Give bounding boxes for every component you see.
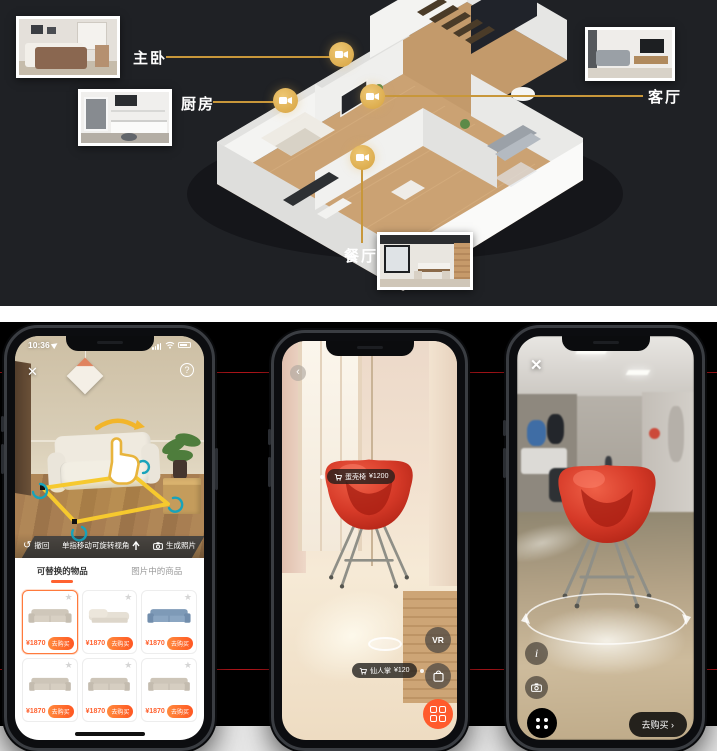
product-card[interactable]: ★ ¥1870去购买 xyxy=(22,658,78,722)
line-kitchen xyxy=(213,101,275,103)
left-phone-screen: ↺ 撤回 单指移动可旋转视角 生成照片 xyxy=(15,336,204,740)
buy-button[interactable]: 去购买 xyxy=(48,637,74,650)
kitchen-shelf xyxy=(111,110,165,112)
close-button[interactable]: ✕ xyxy=(530,356,543,374)
living-floor xyxy=(588,68,672,78)
info-label: i xyxy=(535,646,538,661)
product-price-tag[interactable]: 蛋壳椅 ¥1200 xyxy=(320,469,395,484)
vr-mode-button[interactable]: VR xyxy=(425,627,451,653)
close-button[interactable]: ✕ xyxy=(27,364,38,380)
sofa-image xyxy=(27,605,73,629)
dining-floor xyxy=(380,279,470,287)
tab-replaceable-items[interactable]: 可替换的物品 xyxy=(15,565,110,577)
back-button[interactable]: ‹ xyxy=(290,365,306,381)
placement-outline xyxy=(43,475,168,522)
kitchen-window xyxy=(84,97,108,131)
rotate-arrow-right xyxy=(682,614,691,625)
battery-icon xyxy=(178,342,191,348)
location-arrow-icon xyxy=(51,341,59,349)
product-price: ¥1870 xyxy=(26,708,45,715)
phone-left: ↺ 撤回 单指移动可旋转视角 生成照片 xyxy=(4,325,215,751)
tag-product-price: ¥1200 xyxy=(369,473,388,480)
mute-switch xyxy=(503,420,506,436)
signal-bars-icon xyxy=(152,340,162,350)
buy-button[interactable]: 去购买 xyxy=(48,705,74,718)
generate-photo-button[interactable]: 生成照片 xyxy=(153,540,196,551)
four-dots-icon xyxy=(536,718,549,729)
rotation-ring[interactable] xyxy=(520,588,692,650)
product-card[interactable]: ★ ¥1870去购买 xyxy=(22,590,78,654)
video-camera-icon xyxy=(335,50,348,59)
label-living-room: 客厅 xyxy=(648,86,682,107)
star-icon[interactable]: ★ xyxy=(124,661,132,670)
product-price: ¥1870 xyxy=(145,640,164,647)
thumbnail-living-room[interactable] xyxy=(585,27,675,81)
generate-photo-label: 生成照片 xyxy=(166,540,196,551)
bedroom-chair xyxy=(95,45,109,67)
video-camera-icon xyxy=(356,153,369,162)
page: 主卧 厨房 客厅 餐厅 xyxy=(0,0,717,751)
product-price: ¥1870 xyxy=(86,640,105,647)
cart-icon xyxy=(334,473,342,481)
shopping-bag-icon xyxy=(433,670,444,682)
sheer-curtain xyxy=(429,341,457,586)
tag-product-name: 蛋壳椅 xyxy=(345,472,366,482)
product-tabs: 可替换的物品 图片中的商品 xyxy=(15,558,204,584)
product-grid: ★ ¥1870去购买 ★ ¥1870去购买 ★ ¥1870去购买 xyxy=(15,584,204,722)
video-camera-icon xyxy=(279,96,292,105)
tag-anchor-dot xyxy=(320,475,324,479)
undo-button[interactable]: ↺ 撤回 xyxy=(23,540,49,551)
bedroom-frame xyxy=(31,25,43,34)
tag-product-price: ¥120 xyxy=(394,667,410,674)
floorplan-hero-section: 主卧 厨房 客厅 餐厅 xyxy=(0,0,717,306)
placement-indicator xyxy=(368,637,402,651)
buy-button[interactable]: 去购买 xyxy=(107,705,133,718)
phone-middle: ‹ 蛋壳椅 ¥1200 仙人掌 ¥120 xyxy=(271,330,468,751)
secondary-price-tag[interactable]: 仙人掌 ¥120 xyxy=(352,663,424,678)
sofa-image xyxy=(86,605,132,629)
volume-buttons xyxy=(1,444,4,474)
thumbnail-master-bedroom[interactable] xyxy=(16,16,120,78)
red-chair-3d-model[interactable] xyxy=(315,437,423,599)
line-master-bedroom xyxy=(166,56,331,58)
tag-anchor-dot xyxy=(420,669,424,673)
product-price: ¥1870 xyxy=(86,708,105,715)
video-camera-icon xyxy=(366,92,379,101)
bedroom-blanket xyxy=(35,47,87,69)
camera-icon xyxy=(153,542,163,550)
product-panel: 可替换的物品 图片中的商品 ★ ¥1870去购买 ★ ¥1870去购买 xyxy=(15,558,204,740)
star-icon[interactable]: ★ xyxy=(65,593,73,602)
sofa-image xyxy=(146,673,192,697)
mute-switch xyxy=(268,429,271,445)
camera-marker-living-room[interactable] xyxy=(360,84,385,109)
living-tv xyxy=(640,39,664,53)
power-button xyxy=(215,448,218,490)
apps-grid-button[interactable] xyxy=(423,699,453,729)
star-icon[interactable]: ★ xyxy=(184,593,192,602)
sofa-image xyxy=(86,673,132,697)
tab-items-in-photo[interactable]: 图片中的商品 xyxy=(110,565,205,577)
camera-icon xyxy=(531,683,542,692)
kitchen-hood xyxy=(115,95,137,106)
phone-right: ✕ i 去购买 › xyxy=(506,325,705,751)
label-dining-room: 餐厅 xyxy=(344,245,378,266)
cart-icon xyxy=(359,667,367,675)
dining-slat-wall xyxy=(454,243,470,283)
home-indicator[interactable] xyxy=(75,732,145,736)
shopping-bag-button[interactable] xyxy=(425,663,451,689)
product-price: ¥1870 xyxy=(145,708,164,715)
rotate-hint: 单指移动可旋转视角 xyxy=(62,540,141,551)
ar-room-scene: ↺ 撤回 单指移动可旋转视角 生成照片 xyxy=(15,336,204,558)
door xyxy=(668,406,684,462)
person-blue xyxy=(527,420,546,446)
star-icon[interactable]: ★ xyxy=(65,661,73,670)
status-time: 10:36 xyxy=(28,340,58,350)
arrow-up-icon xyxy=(132,541,140,551)
grid-squares-icon xyxy=(430,706,446,722)
product-card[interactable]: ★ ¥1870去购买 xyxy=(141,658,197,722)
app-screens-section: ↺ 撤回 单指移动可旋转视角 生成照片 xyxy=(0,322,717,751)
volume-buttons xyxy=(268,457,271,487)
buy-button[interactable]: 去购买 xyxy=(167,637,193,650)
undo-label: 撤回 xyxy=(34,540,49,551)
ar-annotations xyxy=(15,336,204,558)
mute-switch xyxy=(1,416,4,432)
wifi-icon xyxy=(165,341,175,349)
product-card[interactable]: ★ ¥1870去购买 xyxy=(82,658,138,722)
camera-marker-kitchen[interactable] xyxy=(273,88,298,113)
product-price: ¥1870 xyxy=(26,640,45,647)
kitchen-rug xyxy=(121,133,137,141)
camera-marker-dining-room[interactable] xyxy=(350,145,375,170)
camera-marker-master-bedroom[interactable] xyxy=(329,42,354,67)
balloon xyxy=(649,428,660,439)
info-button[interactable]: i xyxy=(525,642,548,665)
sofa-image xyxy=(27,673,73,697)
notch xyxy=(326,341,414,356)
buy-button[interactable]: 去购买 xyxy=(167,705,193,718)
tag-product-name: 仙人掌 xyxy=(370,666,391,676)
ar-toolbar: ↺ 撤回 单指移动可旋转视角 生成照片 xyxy=(15,533,204,558)
go-buy-button[interactable]: 去购买 › xyxy=(629,712,688,737)
line-living-room xyxy=(385,95,643,97)
product-card[interactable]: ★ ¥1870去购买 xyxy=(82,590,138,654)
sofa-image xyxy=(146,605,192,629)
undo-icon: ↺ xyxy=(23,541,31,551)
bedroom-frame2 xyxy=(47,27,56,34)
rotate-hint-text: 单指移动可旋转视角 xyxy=(62,540,130,551)
help-button[interactable]: ? xyxy=(180,363,194,377)
vr-label: VR xyxy=(432,635,444,645)
thumbnail-kitchen[interactable] xyxy=(78,89,172,146)
buy-button[interactable]: 去购买 xyxy=(107,637,133,650)
dining-window xyxy=(384,245,410,273)
middle-phone-screen: ‹ 蛋壳椅 ¥1200 仙人掌 ¥120 xyxy=(282,341,457,740)
line-dining-room xyxy=(361,169,363,243)
living-cabinet xyxy=(634,56,668,64)
swipe-arrow xyxy=(97,421,137,428)
hand-gesture-icon xyxy=(110,439,139,484)
volume-buttons xyxy=(503,448,506,478)
status-bar: 10:36 xyxy=(15,340,204,350)
kitchen-counter xyxy=(111,120,167,134)
product-card[interactable]: ★ ¥1870去购买 xyxy=(141,590,197,654)
rotate-arrow-left xyxy=(521,613,530,624)
menu-dots-button[interactable] xyxy=(527,708,557,738)
star-icon[interactable]: ★ xyxy=(184,661,192,670)
thumbnail-dining-room[interactable] xyxy=(377,232,473,290)
screenshot-button[interactable] xyxy=(525,676,548,699)
notch xyxy=(562,336,650,351)
ceiling-light xyxy=(626,370,651,375)
label-master-bedroom: 主卧 xyxy=(133,47,167,68)
label-kitchen: 厨房 xyxy=(181,93,215,114)
living-sofa xyxy=(596,50,630,66)
star-icon[interactable]: ★ xyxy=(124,593,132,602)
right-phone-screen: ✕ i 去购买 › xyxy=(517,336,694,740)
